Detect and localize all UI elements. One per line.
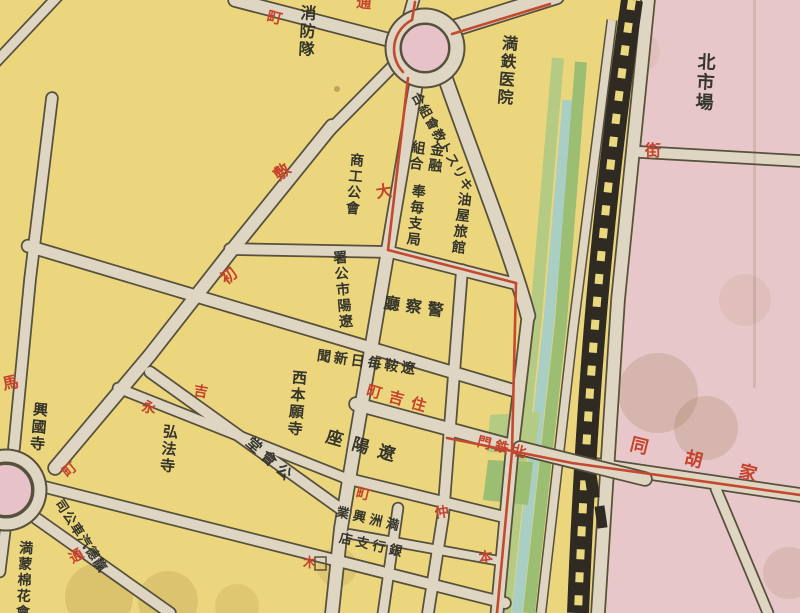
street-kichi-label: 吉 (192, 384, 209, 402)
manmo-cotton-company-label: 満蒙棉花會 (13, 540, 33, 613)
shrine-mark-label: 木 (303, 556, 317, 571)
map-screenshot: 消防隊満鉄医院合組會教トスリキ金融組合奉毎支局油屋旅館廳察警聞新日毎鞍遼署公市陽… (0, 0, 800, 613)
sumiyoshi-cho-label: 町吉住 (364, 383, 435, 418)
street-shiki-label: 敷 (271, 160, 295, 185)
liaoyang-city-office-label: 署公市陽遼 (330, 250, 353, 331)
street-gai-label: 街 (645, 143, 662, 161)
nishi-honganji-label: 西本願寺 (284, 369, 307, 438)
street-ei-label: 永 (140, 400, 157, 418)
north-market-label: 北市場 (693, 52, 716, 113)
kitetsumon-gate-label: 門鉄北 (475, 435, 531, 463)
fire-brigade-label: 消防隊 (294, 4, 315, 59)
manshu-kogyo-bank-label-line2: 店支行銀 (338, 531, 408, 560)
map-labels-layer: 消防隊満鉄医院合組會教トスリキ金融組合奉毎支局油屋旅館廳察警聞新日毎鞍遼署公市陽… (0, 0, 800, 613)
street-machi-label-w: 町 (60, 460, 82, 482)
street-machi-label-nw: 町 (265, 9, 285, 29)
liaoan-mainichi-newspaper-label: 聞新日毎鞍遼 (316, 349, 419, 379)
homai-branch-office-label: 奉毎支局 (403, 183, 425, 248)
aburaya-ryokan-label: 油屋旅館 (448, 191, 471, 256)
street-dai-label: 大 (375, 183, 394, 203)
street-tori-label-top: 通 (356, 0, 373, 13)
street-machi-label-c: 町 (354, 486, 372, 505)
finance-coop-label-left: 組合 (406, 139, 426, 173)
street-naka-label: 仲 (434, 505, 451, 523)
mantetsu-hospital-label: 満鉄医院 (493, 34, 517, 107)
street-uma-label: 馬 (1, 373, 21, 394)
kokoku-ji-label: 興國寺 (27, 401, 48, 453)
street-hon-label: 本 (478, 550, 495, 568)
public-hall-label: 堂會公 (242, 435, 298, 488)
police-hq-label: 廳察警 (383, 295, 451, 322)
kobo-ji-label: 弘法寺 (157, 423, 178, 475)
paper-fold-crease (753, 0, 756, 388)
street-hatsu-label: 初 (218, 264, 242, 289)
liaoyang-za-theater-label: 座陽遼 (324, 427, 407, 468)
finance-coop-label-right: 金融 (425, 141, 445, 175)
jia-hutong-label: 同胡家 (628, 434, 796, 494)
chamber-of-commerce-label: 商工公會 (342, 152, 363, 217)
